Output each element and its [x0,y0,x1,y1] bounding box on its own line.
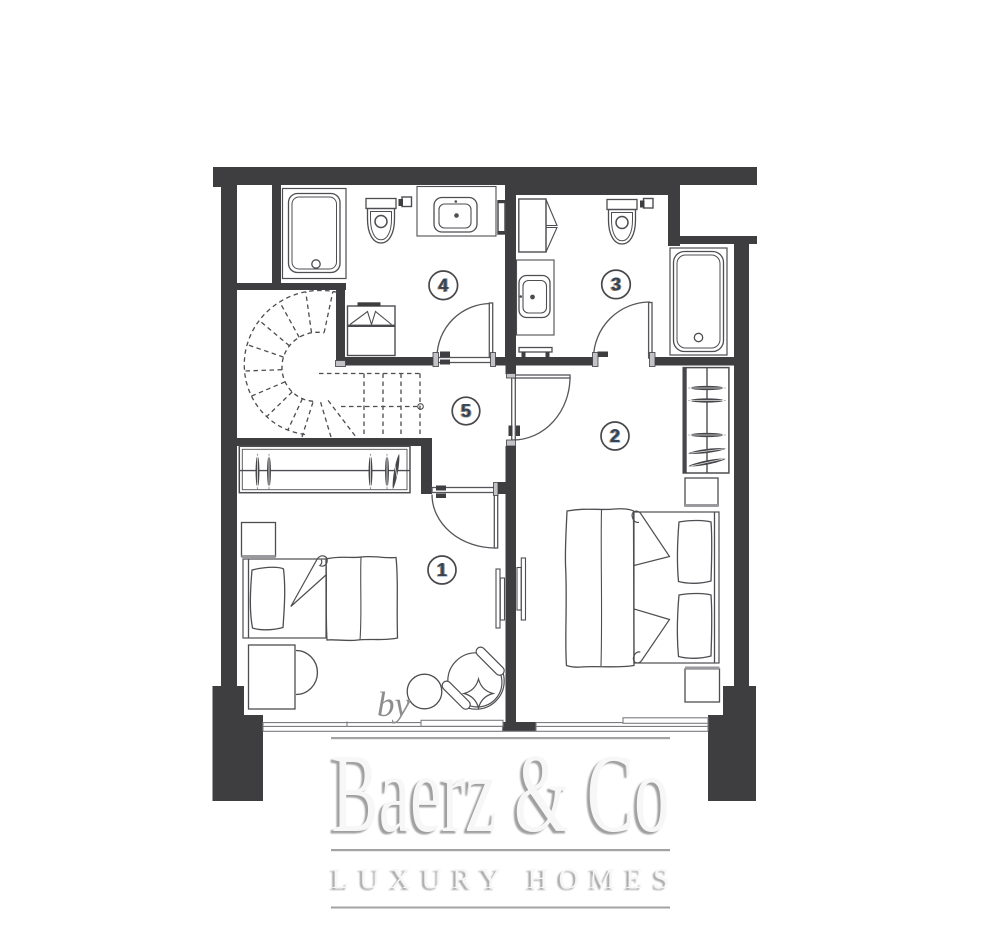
svg-text:Baerz & Co: Baerz & Co [332,732,670,856]
svg-text:by: by [377,685,411,724]
svg-text:3: 3 [611,274,621,294]
svg-text:4: 4 [438,275,448,295]
svg-text:2: 2 [610,426,620,446]
svg-text:5: 5 [461,401,471,421]
svg-text:1: 1 [437,560,447,580]
